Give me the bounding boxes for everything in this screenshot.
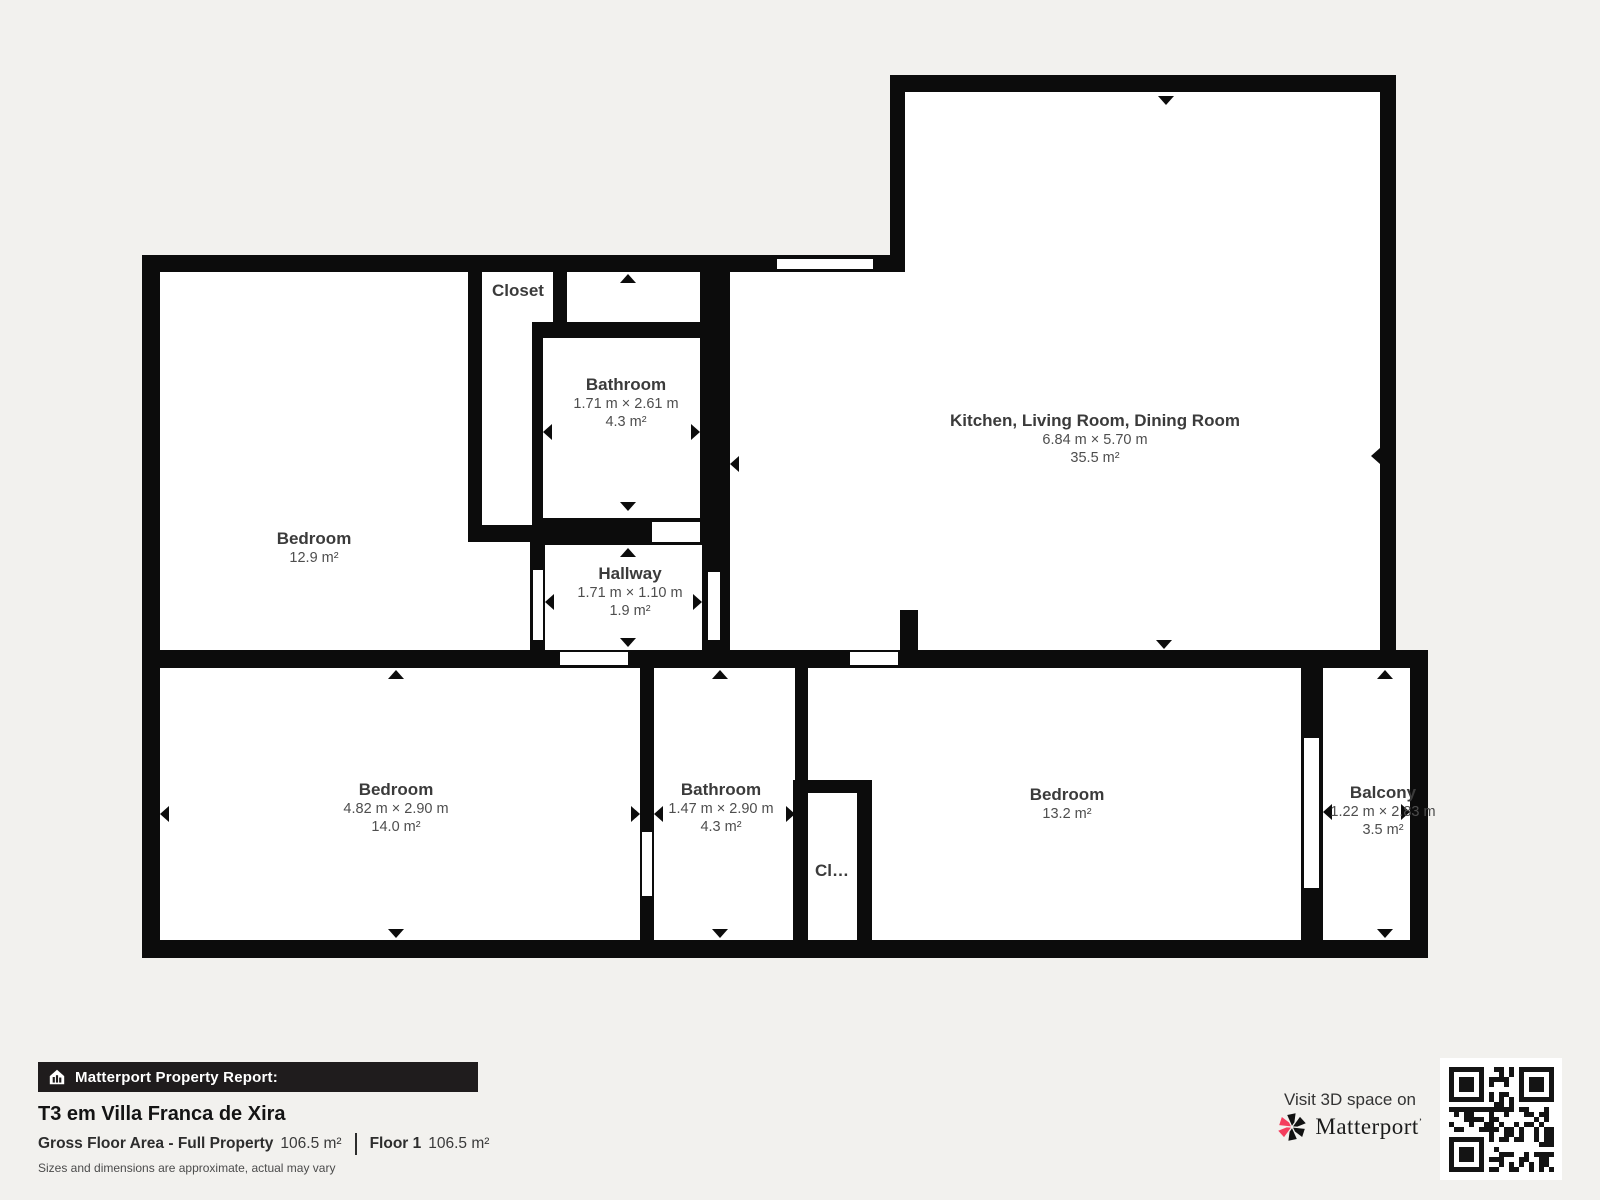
room-area: 4.3 m² bbox=[631, 818, 811, 836]
window-arrow-icon bbox=[1158, 96, 1174, 105]
door-arrow-icon bbox=[1377, 929, 1393, 938]
matterport-brand: Matterportʼ bbox=[1240, 1112, 1460, 1142]
property-title: T3 em Villa Franca de Xira bbox=[38, 1103, 286, 1126]
door-arrow-icon bbox=[620, 502, 636, 511]
door-arrow-icon bbox=[388, 670, 404, 679]
room-dims: 1.22 m × 2.83 m bbox=[1321, 803, 1445, 821]
room-bedroom-top-left bbox=[160, 272, 468, 650]
room-area: 14.0 m² bbox=[246, 818, 546, 836]
report-label: Matterport Property Report: bbox=[75, 1069, 278, 1086]
window-arrow-icon bbox=[1371, 448, 1380, 464]
room-name: Bedroom bbox=[246, 779, 546, 800]
door-arrow-icon bbox=[620, 274, 636, 283]
room-name: Balcony bbox=[1321, 782, 1445, 803]
wall-kitchen-door-stub bbox=[900, 610, 918, 652]
label-bathroom-bottom: Bathroom 1.47 m × 2.90 m 4.3 m² bbox=[631, 779, 811, 836]
room-name: Bedroom bbox=[917, 784, 1217, 805]
visit-3d-text: Visit 3D space on bbox=[1240, 1090, 1460, 1110]
room-name: Bathroom bbox=[631, 779, 811, 800]
room-name: Hallway bbox=[540, 563, 720, 584]
floor-value: 106.5 m² bbox=[428, 1135, 489, 1153]
gross-floor-area-label: Gross Floor Area - Full Property bbox=[38, 1135, 273, 1153]
room-name: Bathroom bbox=[536, 374, 716, 395]
floorplan-report-page: Bedroom 12.9 m² Closet Bathroom 1.71 m ×… bbox=[0, 0, 1600, 1200]
room-kitchen-extension bbox=[730, 272, 905, 650]
door-slot-bathroom-hallway bbox=[652, 522, 700, 542]
room-dims: 1.47 m × 2.90 m bbox=[631, 800, 811, 818]
room-kitchen-living-dining bbox=[905, 92, 1380, 650]
house-chart-icon bbox=[48, 1068, 66, 1086]
room-area: 4.3 m² bbox=[536, 413, 716, 431]
window-arrow-icon bbox=[160, 806, 169, 822]
door-slot-balcony bbox=[1304, 738, 1319, 888]
door-arrow-icon bbox=[730, 456, 739, 472]
room-name: Cl… bbox=[806, 860, 858, 881]
room-dims: 1.71 m × 1.10 m bbox=[540, 584, 720, 602]
door-arrow-icon bbox=[712, 929, 728, 938]
room-closet bbox=[482, 272, 532, 525]
disclaimer-text: Sizes and dimensions are approximate, ac… bbox=[38, 1161, 335, 1175]
room-area: 3.5 m² bbox=[1321, 821, 1445, 839]
label-hallway: Hallway 1.71 m × 1.10 m 1.9 m² bbox=[540, 563, 720, 620]
matterport-logo-icon bbox=[1277, 1112, 1307, 1142]
door-arrow-icon bbox=[1377, 670, 1393, 679]
door-arrow-icon bbox=[712, 670, 728, 679]
room-dims: 6.84 m × 5.70 m bbox=[905, 431, 1285, 449]
room-bedroom-top-left-nook bbox=[468, 542, 530, 650]
room-area: 12.9 m² bbox=[164, 549, 464, 567]
label-bathroom-top: Bathroom 1.71 m × 2.61 m 4.3 m² bbox=[536, 374, 716, 431]
label-balcony: Balcony 1.22 m × 2.83 m 3.5 m² bbox=[1321, 782, 1445, 839]
door-arrow-icon bbox=[388, 929, 404, 938]
label-bedroom-bottom-right: Bedroom 13.2 m² bbox=[917, 784, 1217, 823]
gross-floor-area-value: 106.5 m² bbox=[280, 1135, 341, 1153]
window-slot-top-mid bbox=[777, 259, 873, 269]
matterport-wordmark: Matterportʼ bbox=[1315, 1114, 1422, 1140]
report-header-bar: Matterport Property Report: bbox=[38, 1062, 478, 1092]
door-slot-kitchen-bedroom bbox=[850, 652, 898, 665]
area-summary: Gross Floor Area - Full Property 106.5 m… bbox=[38, 1133, 489, 1155]
floor-label: Floor 1 bbox=[370, 1135, 422, 1153]
room-area: 35.5 m² bbox=[905, 449, 1285, 467]
label-kitchen-living-dining: Kitchen, Living Room, Dining Room 6.84 m… bbox=[905, 410, 1285, 467]
door-slot-bedroom-bathroom bbox=[642, 832, 652, 896]
room-name: Bedroom bbox=[164, 528, 464, 549]
divider bbox=[355, 1133, 357, 1155]
label-bedroom-bottom-left: Bedroom 4.82 m × 2.90 m 14.0 m² bbox=[246, 779, 546, 836]
door-arrow-icon bbox=[620, 548, 636, 557]
door-arrow-icon bbox=[620, 638, 636, 647]
door-slot-hallway-bottom bbox=[560, 652, 628, 665]
floor-plan: Bedroom 12.9 m² Closet Bathroom 1.71 m ×… bbox=[0, 0, 1600, 1000]
qr-code bbox=[1449, 1067, 1554, 1172]
room-dims: 4.82 m × 2.90 m bbox=[246, 800, 546, 818]
room-dims: 1.71 m × 2.61 m bbox=[536, 395, 716, 413]
room-name: Kitchen, Living Room, Dining Room bbox=[905, 410, 1285, 431]
label-closet: Closet bbox=[468, 280, 568, 301]
room-area: 1.9 m² bbox=[540, 602, 720, 620]
room-area: 13.2 m² bbox=[917, 805, 1217, 823]
label-bedroom-top-left: Bedroom 12.9 m² bbox=[164, 528, 464, 567]
label-closet-small: Cl… bbox=[806, 860, 858, 881]
window-arrow-icon bbox=[1156, 640, 1172, 649]
room-name: Closet bbox=[468, 280, 568, 301]
